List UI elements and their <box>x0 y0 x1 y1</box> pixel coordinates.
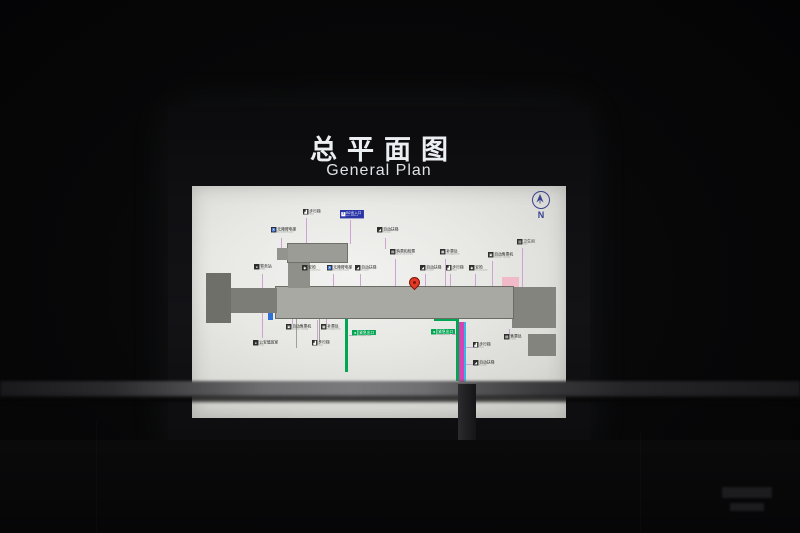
faint-wall-text <box>730 503 764 511</box>
lower-wall <box>0 440 800 533</box>
wall-seam <box>96 420 97 533</box>
wall-seam <box>640 430 641 533</box>
faint-wall-text <box>722 487 772 498</box>
photo-stage: 总平面图 General Plan N ▟步行梯Stairs2B2出入口Exit… <box>0 0 800 533</box>
railing-shadow <box>0 396 800 402</box>
sign-title-en: General Plan <box>168 162 590 180</box>
